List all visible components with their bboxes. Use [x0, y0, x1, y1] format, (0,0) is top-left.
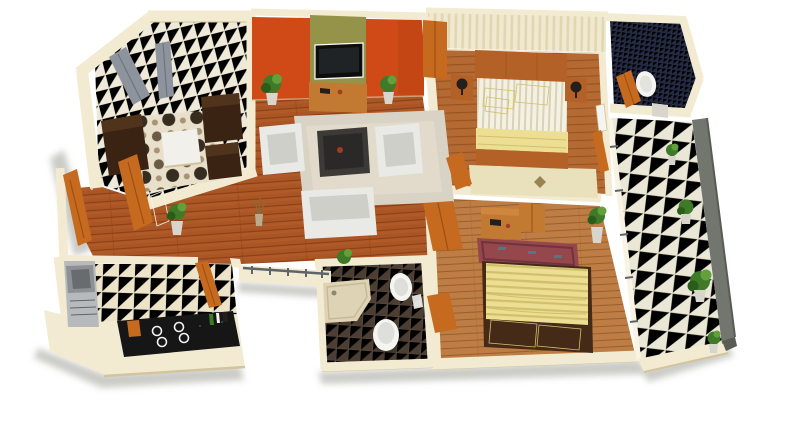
lamp-right: [571, 82, 582, 93]
bed1-blanket: [476, 128, 568, 153]
console-item-dark: [320, 88, 330, 94]
counter-fleck-2: [199, 325, 201, 327]
toilet-seat: [378, 322, 395, 344]
north-wall-cap: [251, 12, 428, 16]
balcony-rail-post-3: [620, 234, 628, 235]
lounge-table: [161, 129, 201, 167]
media-console: [309, 82, 367, 113]
plant-foliage-light: [388, 76, 397, 85]
balcony-rail-post-5: [630, 321, 638, 322]
bathroom-top-wall: [315, 259, 428, 263]
entry-left-wall: [60, 168, 64, 260]
desk-item-red: [506, 224, 510, 228]
floor-plan-render: 3D rendered isometric floor plan of a tw…: [0, 0, 800, 430]
living-coffee-table-top: [323, 133, 364, 170]
bathroom-bottom-wall: [322, 363, 433, 367]
plant-pot: [591, 227, 603, 243]
sink-bowl: [71, 269, 91, 289]
ensuite-step: [652, 103, 668, 118]
plant-foliage-light: [701, 270, 712, 281]
ensuite-top-wall: [604, 17, 686, 20]
plant-foliage-light: [344, 249, 352, 257]
plant-pot: [668, 156, 676, 165]
living-armchair-left-seat: [267, 132, 298, 165]
plant-foliage-dark: [688, 281, 699, 292]
rug-teal-mark-3: [554, 255, 562, 258]
balcony-rail-post-1: [610, 146, 618, 147]
living-sofa-seat: [309, 194, 370, 221]
counter-item-dark: [222, 312, 228, 322]
plant-pot: [171, 221, 183, 235]
balcony-rail-post-4: [625, 277, 633, 278]
bed1-headboard: [475, 50, 567, 82]
plant-foliage-light: [714, 331, 721, 338]
counter-orange-box: [127, 320, 141, 337]
floor-plan-svg: 3D rendered isometric floor plan of a tw…: [0, 0, 800, 430]
tv-screen: [319, 47, 359, 74]
plant-foliage-dark: [167, 212, 176, 221]
plant-pot: [266, 93, 278, 105]
plant-foliage-dark: [588, 216, 597, 225]
living-accent-wall-shade: [398, 20, 424, 96]
balcony-rail-post-2: [615, 190, 623, 191]
living-armchair-right-seat: [383, 132, 416, 167]
table-decor-red: [337, 147, 343, 153]
plant-foliage-dark: [261, 83, 271, 93]
lamp-left: [457, 79, 468, 90]
lounge-left-wall: [82, 70, 96, 188]
kitchen-top-wall: [60, 259, 198, 261]
bed2-blanket: [486, 263, 588, 325]
bedroom1-rug: [469, 165, 598, 198]
counter-fleck-3: [221, 321, 223, 323]
plant-foliage-light: [598, 207, 607, 216]
rug-teal-mark-2: [528, 251, 536, 254]
plant-foliage-light: [178, 203, 187, 212]
ensuite-bottom-wall: [610, 108, 691, 113]
plant-pot: [709, 344, 718, 353]
plant-pot: [681, 214, 691, 224]
console-item-red: [338, 90, 343, 95]
vase: [255, 214, 263, 226]
shower-drain: [332, 291, 337, 296]
bedroom1-wallpaper-wall: [428, 13, 606, 52]
plant-foliage-dark: [677, 207, 685, 215]
plant-foliage-light: [672, 144, 679, 151]
rug-teal-mark-1: [498, 247, 506, 250]
desk-item-dark: [490, 219, 501, 226]
plant-pot: [694, 290, 706, 302]
plant-foliage-light: [272, 74, 282, 84]
